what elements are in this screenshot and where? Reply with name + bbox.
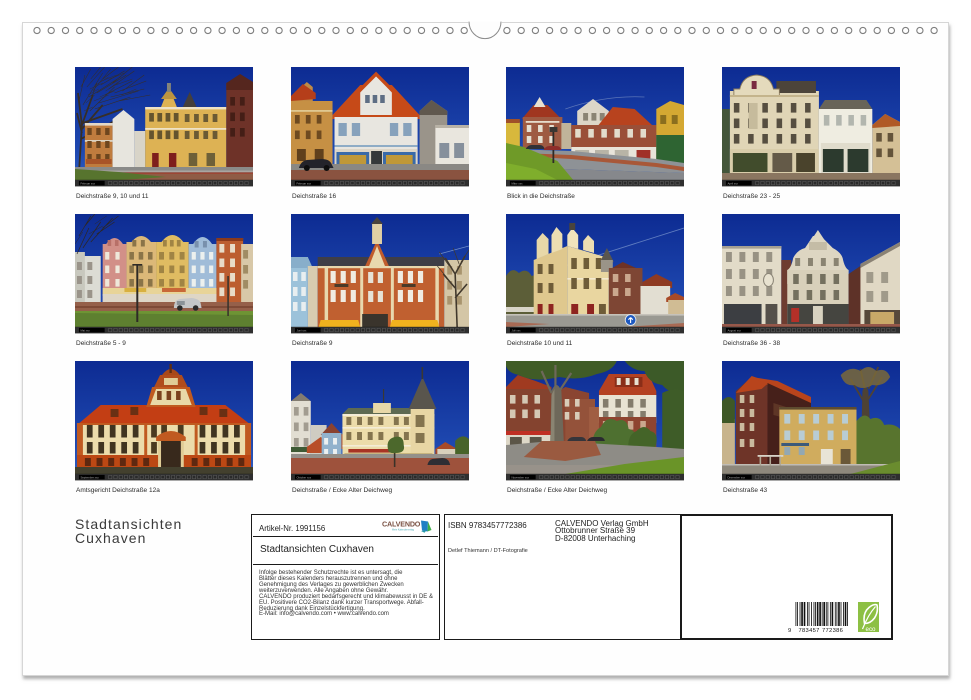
svg-text:März xxx: März xxx bbox=[511, 181, 523, 185]
svg-text:Oktober xxx: Oktober xxx bbox=[296, 475, 311, 479]
svg-text:Mein Kalenderverlag: Mein Kalenderverlag bbox=[392, 529, 415, 532]
svg-text:Juni xxx: Juni xxx bbox=[296, 328, 307, 332]
svg-text:April xxx: April xxx bbox=[727, 181, 738, 185]
svg-text:Mai xxx: Mai xxx bbox=[80, 328, 90, 332]
svg-text:Juli xxx: Juli xxx bbox=[511, 328, 521, 332]
svg-text:CALVENDO: CALVENDO bbox=[382, 520, 421, 529]
svg-text:Februar xxx: Februar xxx bbox=[296, 181, 311, 185]
svg-text:9: 9 bbox=[788, 628, 791, 633]
svg-text:eco: eco bbox=[866, 626, 877, 632]
svg-text:August xxx: August xxx bbox=[727, 328, 741, 332]
svg-text:November xxx: November xxx bbox=[511, 475, 529, 479]
svg-text:772386: 772386 bbox=[822, 628, 843, 633]
svg-text:783457: 783457 bbox=[799, 628, 820, 633]
svg-text:Februar xxx: Februar xxx bbox=[80, 181, 95, 185]
svg-text:September xxx: September xxx bbox=[80, 475, 99, 479]
svg-text:Dezember xxx: Dezember xxx bbox=[727, 475, 745, 479]
